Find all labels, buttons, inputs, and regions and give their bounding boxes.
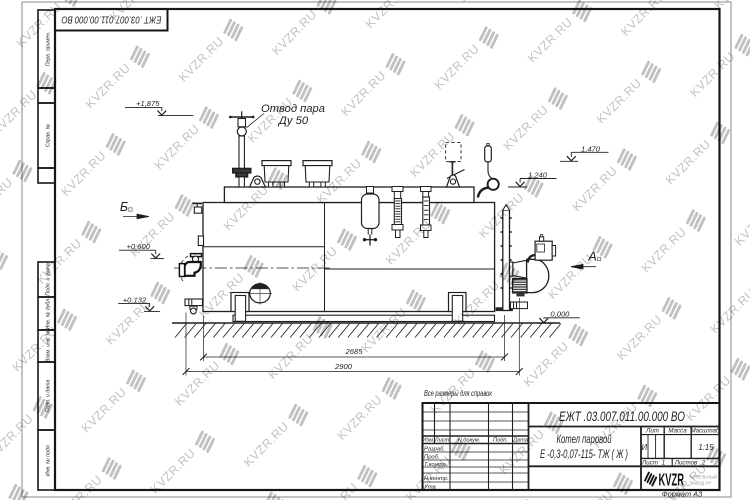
svg-text:Изм.: Изм.	[423, 438, 435, 444]
svg-text:2900: 2900	[334, 362, 353, 371]
svg-text:Перв. примен.: Перв. примен.	[46, 32, 52, 66]
svg-text:Подп.: Подп.	[493, 438, 508, 444]
svg-text:Справ. №: Справ. №	[46, 123, 52, 147]
svg-text:+1,875: +1,875	[136, 99, 160, 108]
svg-text:Лист: Лист	[641, 460, 658, 467]
svg-text:Разраб.: Разраб.	[424, 447, 445, 453]
svg-text:Е -0,3-0,07-115- ТЖ ( Ж ): Е -0,3-0,07-115- ТЖ ( Ж )	[540, 448, 628, 461]
svg-text:Лит: Лит	[645, 428, 659, 435]
svg-text:Лист: Лист	[434, 438, 450, 444]
svg-text:И: И	[642, 443, 648, 452]
svg-text:Б: Б	[120, 200, 128, 214]
svg-text:Инв. № подл.: Инв. № подл.	[46, 444, 52, 476]
svg-text:0,000: 0,000	[550, 309, 570, 318]
svg-text:Масштаб: Масштаб	[691, 428, 720, 435]
svg-text:1: 1	[662, 460, 665, 467]
svg-text:Масса: Масса	[668, 428, 687, 435]
